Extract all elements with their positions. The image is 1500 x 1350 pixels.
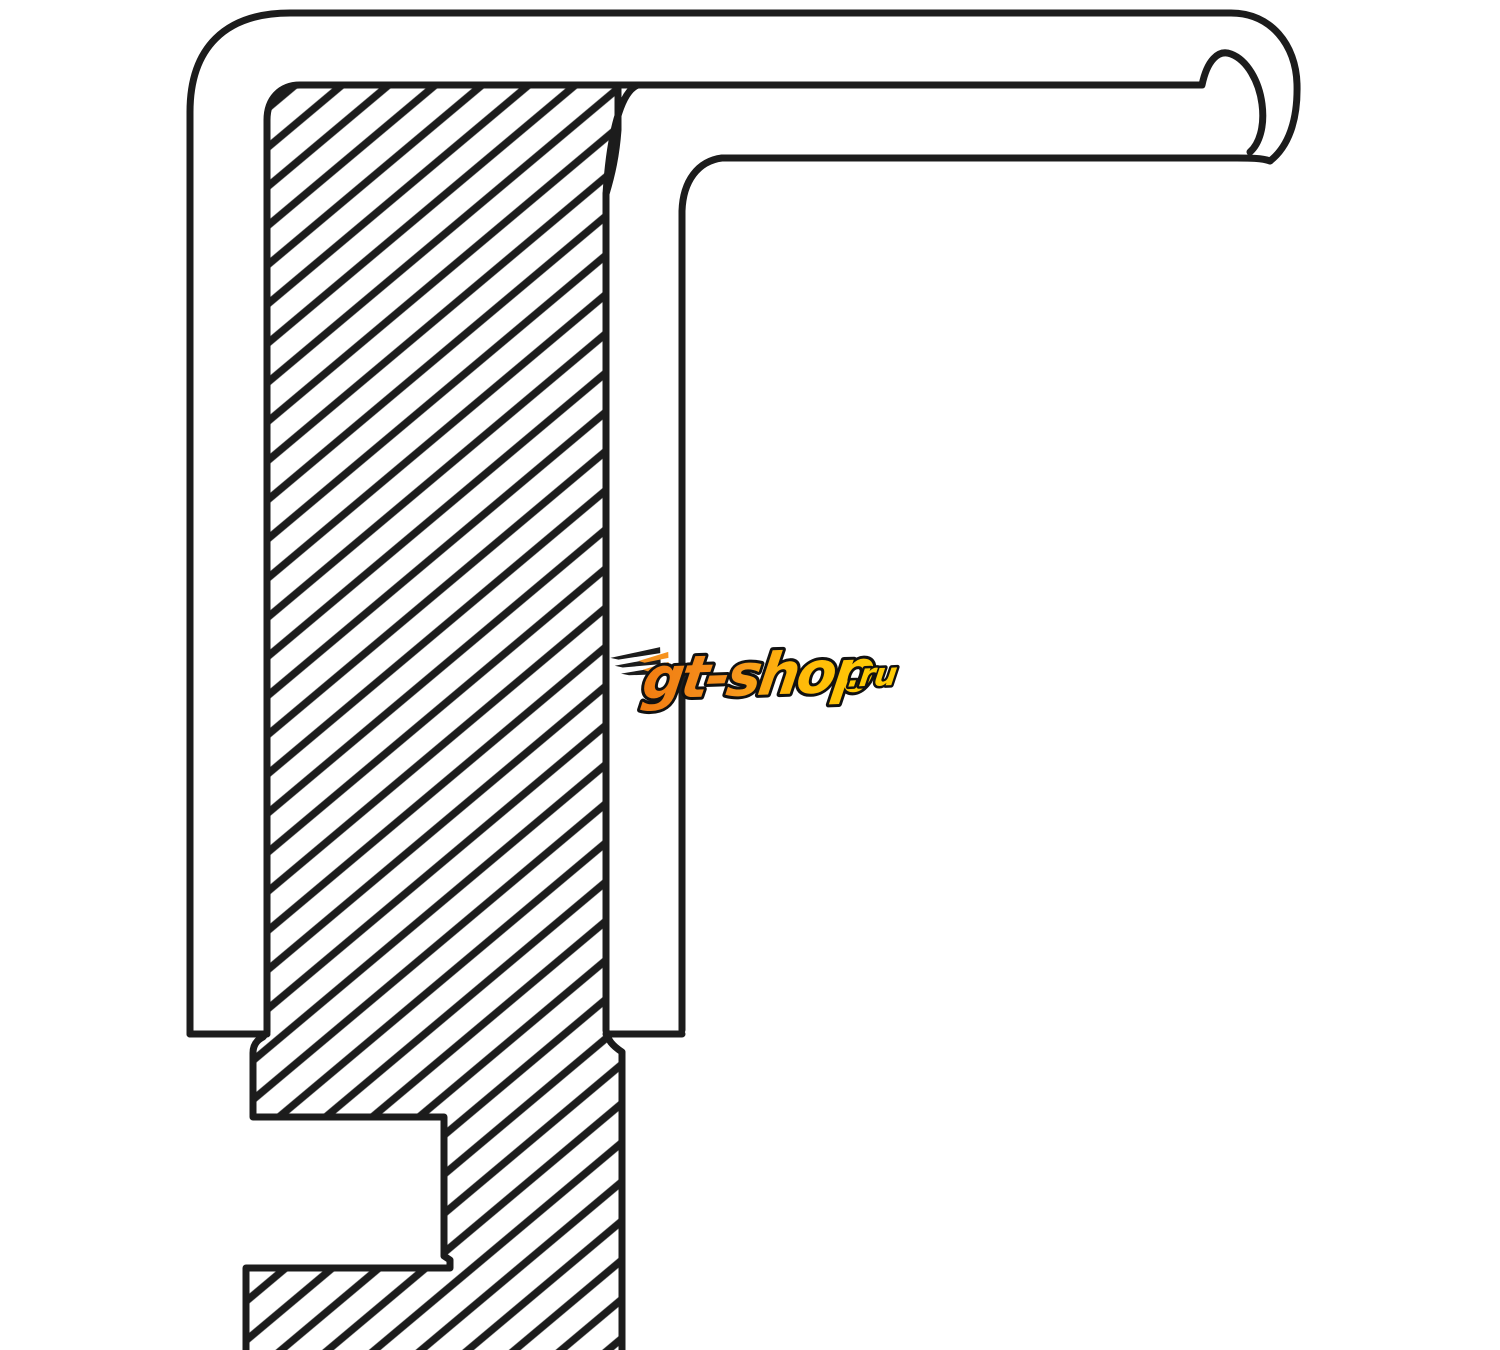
watermark-text-main: gt-shop (638, 637, 878, 713)
watermark-text-suffix: .ru (846, 655, 899, 695)
inner-case-lower-edge-line (722, 158, 1270, 161)
watermark-logo: gt-shop .ru (610, 636, 901, 714)
seal-cross-section-diagram: gt-shop .ru (0, 0, 1500, 1350)
diagram-svg: gt-shop .ru (0, 0, 1500, 1350)
